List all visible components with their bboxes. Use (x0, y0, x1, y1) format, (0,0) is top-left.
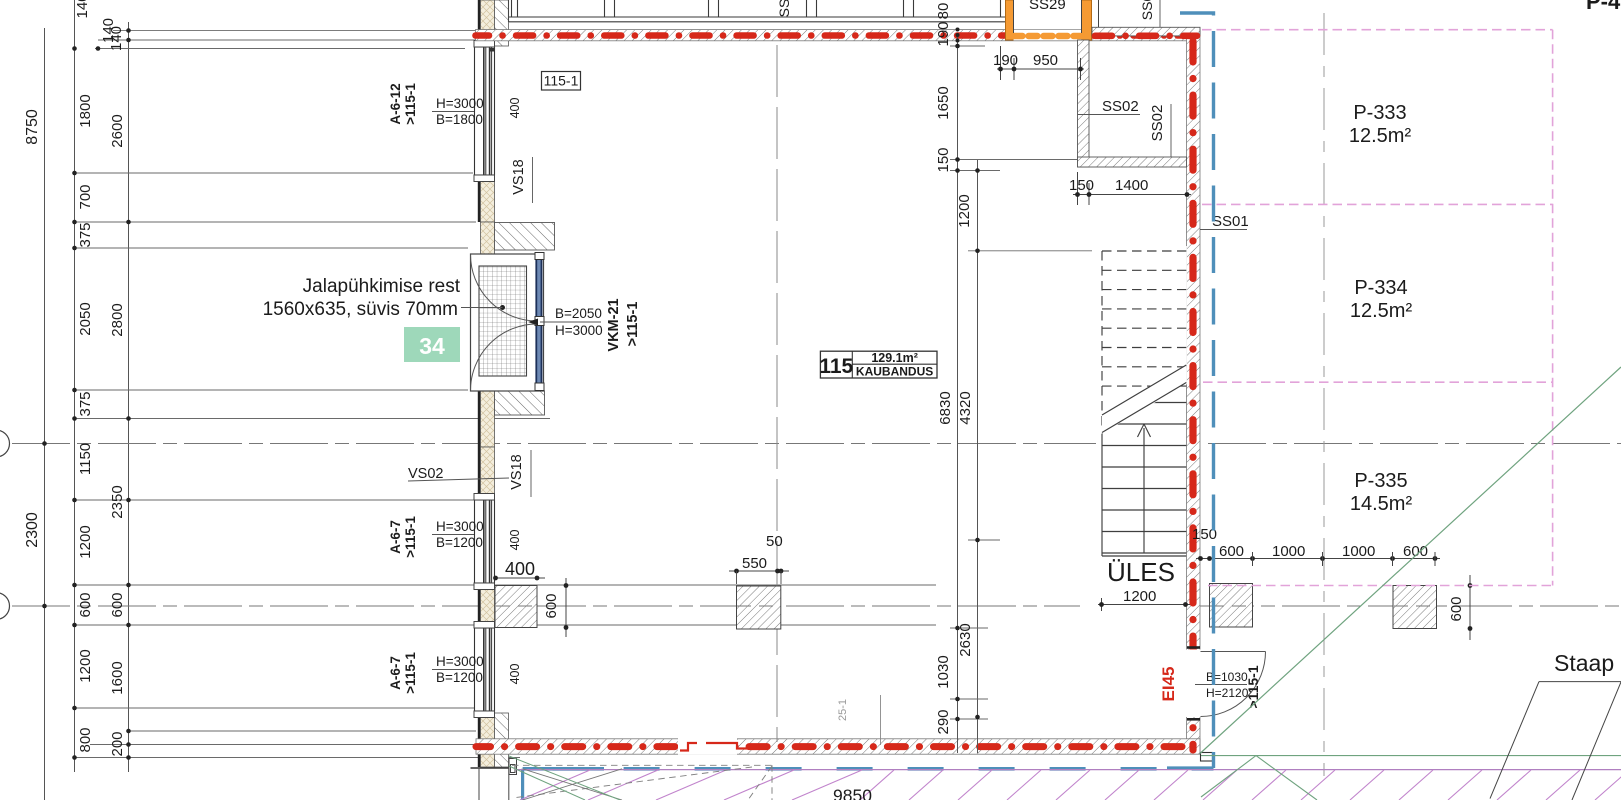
svg-text:H=3000: H=3000 (436, 654, 484, 669)
svg-text:1560x635, süvis 70mm: 1560x635, süvis 70mm (263, 299, 458, 320)
svg-text:600: 600 (77, 592, 94, 617)
svg-text:P-335: P-335 (1354, 470, 1407, 492)
svg-text:600: 600 (1219, 543, 1244, 560)
svg-text:1200: 1200 (77, 525, 94, 558)
svg-text:400: 400 (505, 559, 535, 579)
svg-text:200: 200 (109, 731, 126, 756)
svg-text:400: 400 (508, 98, 522, 119)
svg-text:VS02: VS02 (408, 466, 443, 482)
svg-text:Jalapühkimise rest: Jalapühkimise rest (303, 276, 461, 297)
svg-text:375: 375 (77, 391, 94, 416)
svg-text:950: 950 (1033, 52, 1058, 69)
svg-text:2630: 2630 (957, 623, 974, 656)
svg-text:115: 115 (819, 355, 853, 378)
svg-text:SS29: SS29 (1029, 0, 1066, 13)
svg-text:190: 190 (993, 52, 1018, 69)
svg-text:EI45: EI45 (1159, 667, 1178, 702)
svg-text:4320: 4320 (957, 391, 974, 424)
svg-text:1800: 1800 (77, 94, 94, 127)
svg-text:9850: 9850 (833, 786, 872, 800)
svg-text:1030: 1030 (935, 655, 952, 688)
svg-text:B=1200: B=1200 (436, 670, 483, 685)
svg-text:400: 400 (508, 664, 522, 685)
svg-text:290: 290 (935, 709, 952, 734)
svg-text:SS0: SS0 (1139, 0, 1155, 20)
svg-text:600: 600 (543, 593, 560, 618)
svg-text:50: 50 (766, 533, 783, 550)
svg-text:1650: 1650 (935, 86, 952, 119)
svg-text:P-333: P-333 (1353, 102, 1406, 124)
svg-text:190: 190 (935, 21, 952, 46)
svg-text:>115-1: >115-1 (1245, 665, 1261, 708)
svg-text:KAUBANDUS: KAUBANDUS (856, 365, 933, 379)
svg-text:>115-1: >115-1 (403, 516, 418, 558)
svg-text:ÜLES: ÜLES (1107, 557, 1175, 587)
svg-text:8750: 8750 (24, 109, 41, 145)
svg-text:B=1800: B=1800 (436, 112, 483, 127)
svg-text:A-6-7: A-6-7 (388, 656, 403, 690)
svg-text:H=2120: H=2120 (1206, 686, 1249, 700)
svg-text:P-334: P-334 (1354, 277, 1407, 299)
svg-text:6830: 6830 (937, 391, 954, 424)
svg-text:VKM-21: VKM-21 (606, 298, 622, 351)
svg-text:2050: 2050 (77, 302, 94, 335)
svg-text:115-1: 115-1 (544, 73, 579, 89)
svg-text:SS02: SS02 (1102, 98, 1139, 115)
svg-text:H=3000: H=3000 (436, 96, 484, 111)
svg-text:700: 700 (77, 184, 94, 209)
svg-text:H=3000: H=3000 (436, 519, 484, 534)
svg-text:2350: 2350 (109, 485, 126, 518)
svg-text:14.5m²: 14.5m² (1350, 493, 1413, 515)
svg-text:375: 375 (77, 222, 94, 247)
svg-text:140: 140 (108, 26, 125, 51)
svg-text:34: 34 (419, 333, 445, 359)
svg-text:SS01: SS01 (1212, 213, 1249, 230)
svg-text:2800: 2800 (109, 303, 126, 336)
svg-text:>115-1: >115-1 (403, 652, 418, 694)
svg-text:A-6-12: A-6-12 (388, 83, 403, 124)
svg-text:Staap: Staap (1554, 650, 1614, 676)
svg-text:600: 600 (1448, 596, 1465, 621)
svg-text:550: 550 (742, 555, 767, 572)
svg-text:12.5m²: 12.5m² (1350, 300, 1413, 322)
svg-text:VS18: VS18 (509, 454, 525, 489)
svg-text:1600: 1600 (109, 661, 126, 694)
svg-text:2600: 2600 (109, 114, 126, 147)
svg-text:400: 400 (508, 530, 522, 551)
svg-text:150: 150 (935, 147, 952, 172)
svg-text:2300: 2300 (24, 512, 41, 548)
svg-text:SS02: SS02 (1149, 105, 1166, 142)
svg-text:600: 600 (109, 592, 126, 617)
svg-text:1150: 1150 (77, 443, 94, 475)
svg-text:150: 150 (1069, 177, 1094, 194)
svg-text:1000: 1000 (1272, 543, 1305, 560)
svg-text:VS18: VS18 (511, 159, 527, 194)
svg-text:1200: 1200 (77, 649, 94, 682)
svg-text:A-6-7: A-6-7 (388, 520, 403, 554)
svg-text:12.5m²: 12.5m² (1349, 125, 1412, 147)
svg-text:1200: 1200 (1123, 588, 1156, 605)
svg-text:80: 80 (935, 3, 952, 20)
svg-text:>115-1: >115-1 (625, 302, 641, 347)
svg-text:140: 140 (74, 0, 91, 19)
svg-text:SS: SS (776, 0, 792, 17)
svg-text:1000: 1000 (1342, 543, 1375, 560)
svg-text:129.1m²: 129.1m² (871, 351, 918, 365)
svg-text:800: 800 (77, 727, 94, 752)
svg-text:H=3000: H=3000 (555, 323, 603, 338)
svg-text:600: 600 (1403, 543, 1428, 560)
svg-text:P-4: P-4 (1586, 0, 1621, 14)
svg-text:1400: 1400 (1115, 177, 1148, 194)
svg-text:>115-1: >115-1 (403, 83, 418, 125)
svg-text:B=2050: B=2050 (555, 306, 602, 321)
svg-text:B=1200: B=1200 (436, 535, 483, 550)
svg-text:25-1: 25-1 (837, 699, 849, 721)
svg-text:1200: 1200 (956, 194, 973, 227)
